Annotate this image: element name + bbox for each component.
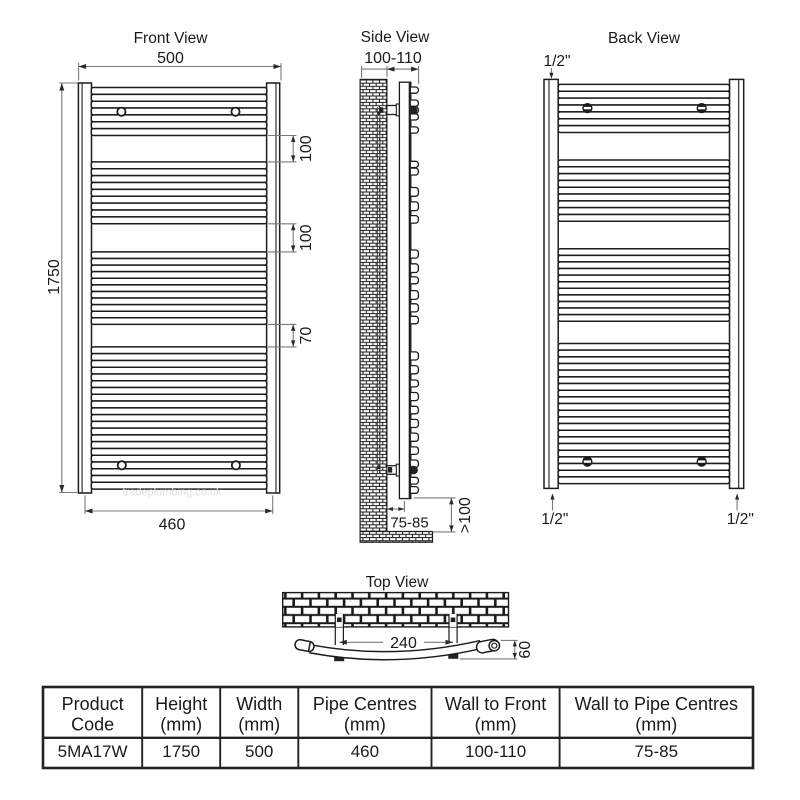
svg-text:1/2": 1/2" xyxy=(727,511,754,528)
svg-text:460: 460 xyxy=(351,742,379,761)
svg-text:500: 500 xyxy=(157,50,184,67)
svg-text:(mm): (mm) xyxy=(160,715,202,735)
svg-text:Wall to Pipe Centres: Wall to Pipe Centres xyxy=(575,694,738,714)
svg-text:100: 100 xyxy=(298,224,315,251)
svg-text:Height: Height xyxy=(155,694,207,714)
svg-text:(mm): (mm) xyxy=(344,715,386,735)
svg-text:100: 100 xyxy=(298,135,315,162)
svg-text:Code: Code xyxy=(71,715,114,735)
svg-text:1750: 1750 xyxy=(162,742,200,761)
svg-text:Wall to Front: Wall to Front xyxy=(445,694,546,714)
svg-text:>100: >100 xyxy=(457,497,474,533)
svg-text:1750: 1750 xyxy=(46,259,63,295)
svg-text:500: 500 xyxy=(245,742,273,761)
svg-text:1/2": 1/2" xyxy=(544,53,571,70)
svg-text:70: 70 xyxy=(298,327,315,345)
svg-text:Back View: Back View xyxy=(608,30,681,47)
svg-text:Width: Width xyxy=(236,694,282,714)
svg-text:240: 240 xyxy=(390,635,417,652)
svg-text:tradeplumbing.co.uk: tradeplumbing.co.uk xyxy=(122,487,222,499)
svg-text:60: 60 xyxy=(517,641,534,659)
svg-text:Top View: Top View xyxy=(366,574,429,591)
svg-text:Pipe Centres: Pipe Centres xyxy=(313,694,417,714)
svg-text:Product: Product xyxy=(62,694,124,714)
svg-text:(mm): (mm) xyxy=(475,715,517,735)
svg-text:Side View: Side View xyxy=(361,29,430,46)
svg-text:460: 460 xyxy=(159,517,186,534)
svg-text:100-110: 100-110 xyxy=(364,50,422,67)
svg-text:5MA17W: 5MA17W xyxy=(58,742,128,761)
svg-text:Front View: Front View xyxy=(134,30,209,47)
svg-text:100-110: 100-110 xyxy=(465,742,526,761)
svg-text:(mm): (mm) xyxy=(238,715,280,735)
svg-text:75-85: 75-85 xyxy=(390,514,428,531)
svg-text:75-85: 75-85 xyxy=(635,742,678,761)
svg-text:(mm): (mm) xyxy=(635,715,677,735)
svg-text:1/2": 1/2" xyxy=(541,511,568,528)
